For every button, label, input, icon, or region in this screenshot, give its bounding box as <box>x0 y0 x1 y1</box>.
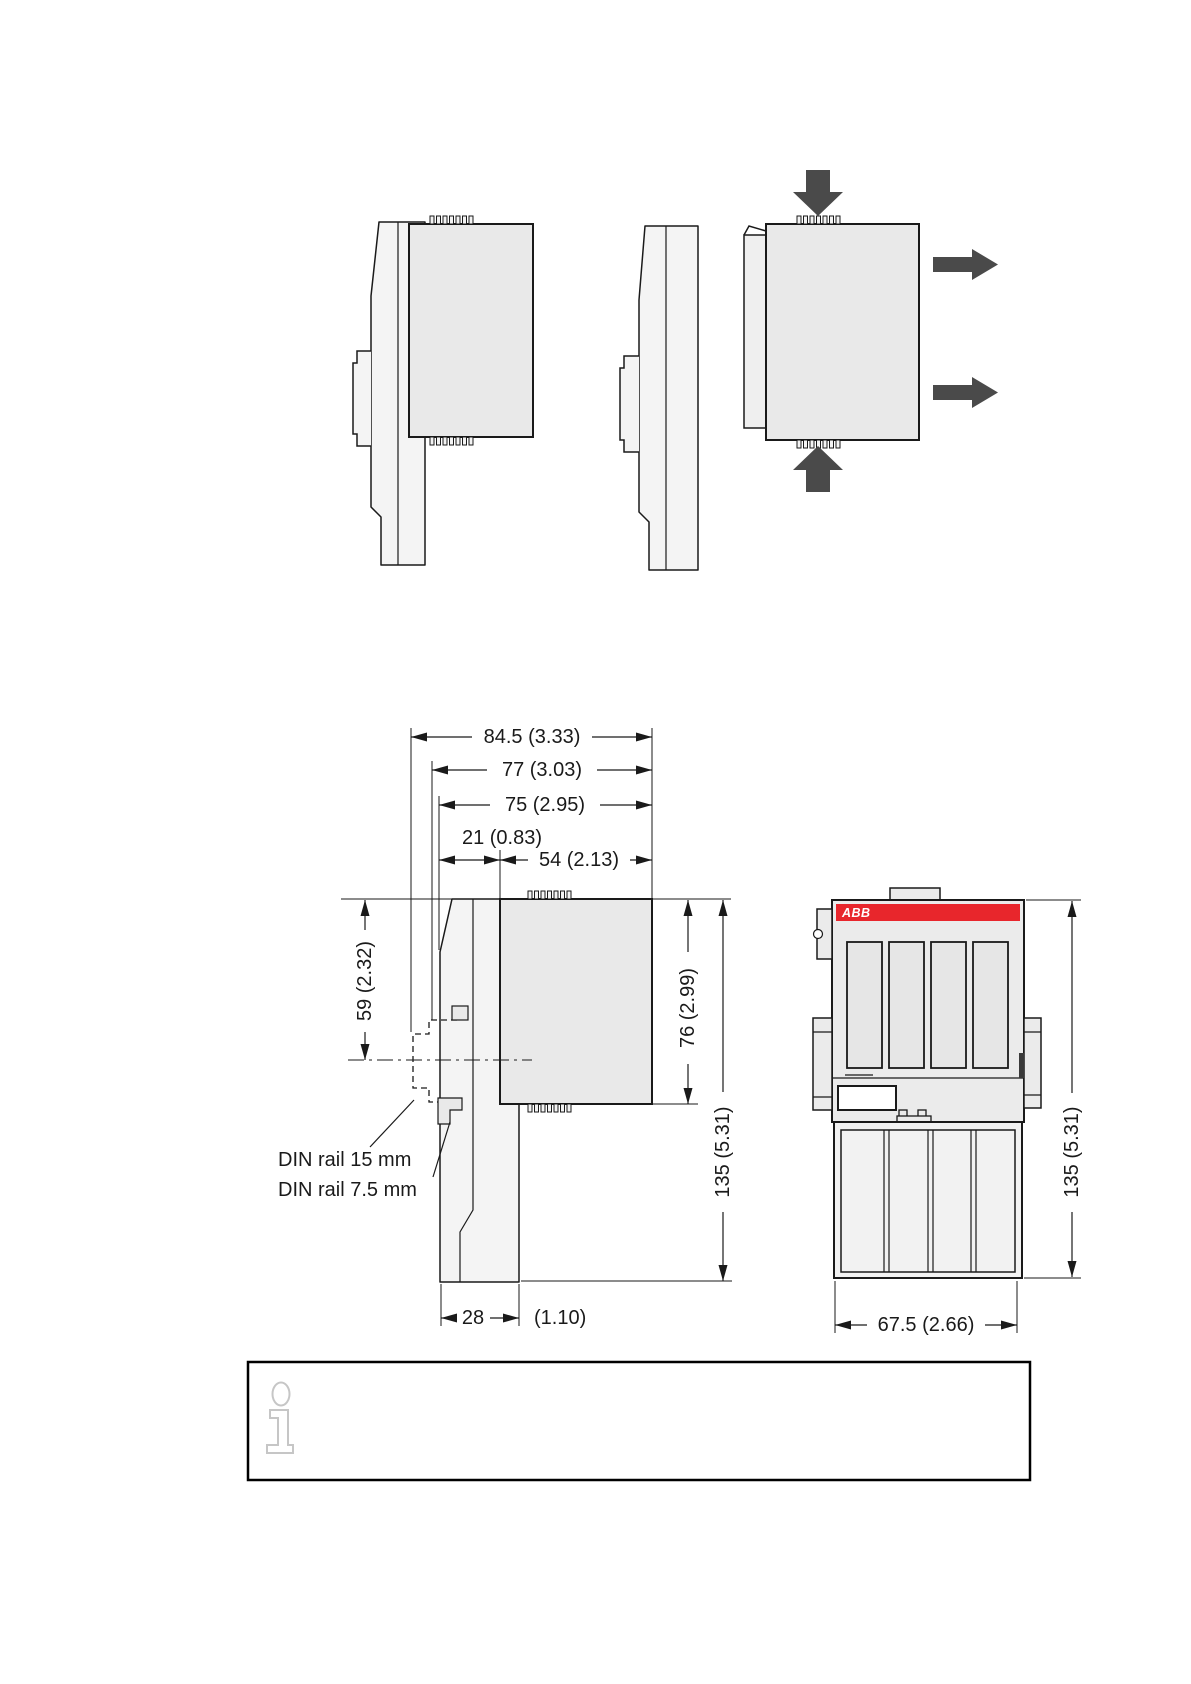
dimension-module-depth: 54 (2.13) <box>500 849 652 871</box>
terminal-slot <box>931 942 966 1068</box>
side-view-dimension-drawing: 84.5 (3.33) 77 (3.03) 75 (2.95) 21 (0.83… <box>278 726 734 1329</box>
bus-connector-teeth-top <box>430 216 473 224</box>
bus-connector-teeth-bottom <box>528 1104 571 1112</box>
dimension-back-offset: 21 (0.83) <box>439 827 542 865</box>
label-window <box>838 1086 896 1110</box>
technical-drawing-canvas: 84.5 (3.33) 77 (3.03) 75 (2.95) 21 (0.83… <box>0 0 1191 1684</box>
dimension-depth-75: 75 (2.95) <box>439 794 652 816</box>
dimension-total-depth: 84.5 (3.33) <box>411 726 652 748</box>
terminal-slot <box>973 942 1008 1068</box>
front-view-dimension-drawing: ABB <box>813 888 1083 1336</box>
terminal-slot <box>847 942 882 1068</box>
dim-label-total-height-front: 135 (5.31) <box>1061 1106 1083 1197</box>
dim-label-front-width: 67.5 (2.66) <box>878 1314 975 1336</box>
dim-label-foot-width-mm: 28 <box>462 1307 484 1329</box>
dim-label-module-depth: 54 (2.13) <box>539 849 619 871</box>
mounting-plate <box>639 226 698 570</box>
dim-label-depth-75: 75 (2.95) <box>505 794 585 816</box>
abb-logo: ABB <box>841 906 871 920</box>
din-rail-15-label: DIN rail 15 mm <box>278 1149 411 1171</box>
dim-label-back-offset: 21 (0.83) <box>462 827 542 849</box>
din-rail-clip <box>353 351 371 446</box>
dimension-module-height: 76 (2.99) <box>677 900 699 1104</box>
din-rail-clip <box>620 356 639 452</box>
dim-label-depth-77: 77 (3.03) <box>502 759 582 781</box>
module-back-plate <box>744 235 766 428</box>
dimension-total-height-front: 135 (5.31) <box>1061 901 1083 1277</box>
dim-label-module-height: 76 (2.99) <box>677 968 699 1048</box>
dim-label-total-depth: 84.5 (3.33) <box>484 726 581 748</box>
io-module-side <box>766 224 919 440</box>
bus-connector-dark <box>1019 1053 1024 1078</box>
bus-connector-teeth-bottom <box>430 437 473 445</box>
info-note-box <box>248 1362 1030 1480</box>
dimension-depth-77: 77 (3.03) <box>432 759 652 781</box>
manual-page: 84.5 (3.33) 77 (3.03) 75 (2.95) 21 (0.83… <box>0 0 1191 1684</box>
io-module-side <box>500 899 652 1104</box>
mounted-module-side-illustration <box>353 216 533 565</box>
dismount-module-illustration <box>620 170 998 570</box>
bus-connector-teeth-top <box>528 891 571 899</box>
press-up-arrow-icon <box>793 446 843 492</box>
din-rail-7-5-label: DIN rail 7.5 mm <box>278 1179 417 1201</box>
terminal-slot <box>889 942 924 1068</box>
din-rail-callouts: DIN rail 15 mm DIN rail 7.5 mm <box>278 1100 450 1201</box>
tab-notch <box>814 930 823 939</box>
pull-out-arrow-icon <box>933 249 998 280</box>
press-down-arrow-icon <box>793 170 843 216</box>
dim-label-top-to-rail-center: 59 (2.32) <box>354 941 376 1021</box>
back-plate-hook <box>744 226 766 235</box>
bus-connector-teeth-top <box>797 216 840 224</box>
dimension-front-width: 67.5 (2.66) <box>835 1314 1017 1336</box>
dim-label-foot-width-in: (1.10) <box>534 1307 586 1329</box>
dimension-total-height-side: 135 (5.31) <box>712 900 734 1281</box>
pull-out-arrow-icon <box>933 377 998 408</box>
dimension-top-to-rail-center: 59 (2.32) <box>354 900 376 1060</box>
io-module-side <box>409 224 533 437</box>
note-border <box>248 1362 1030 1480</box>
dim-label-total-height-side: 135 (5.31) <box>712 1106 734 1197</box>
dimension-foot-width: 28 (1.10) <box>441 1307 586 1329</box>
top-tab <box>890 888 940 900</box>
rail-hook-top <box>452 1006 468 1020</box>
